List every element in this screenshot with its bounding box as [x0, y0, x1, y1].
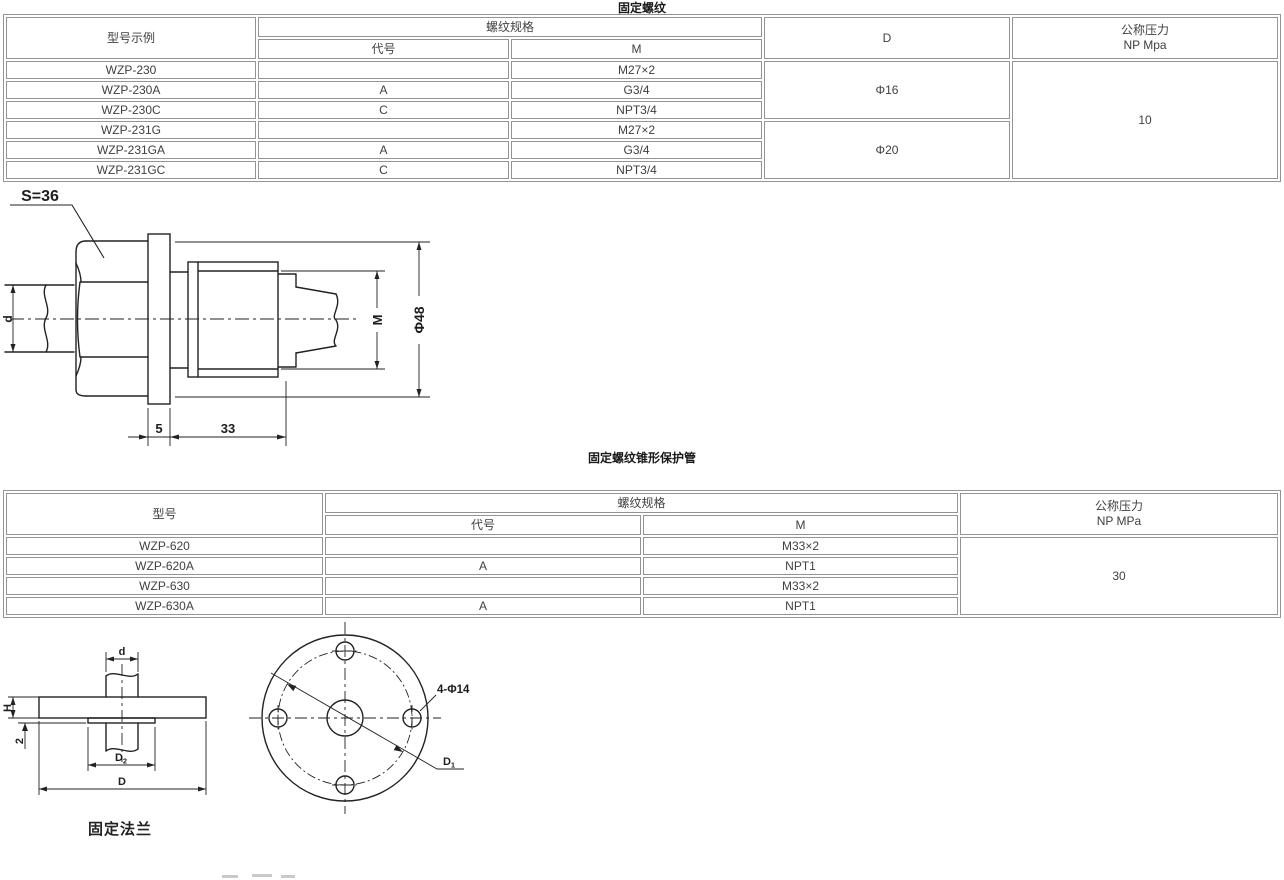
cell-model: WZP-230C	[6, 101, 256, 119]
d2-sub: 2	[123, 757, 127, 766]
fixed-thread-drawing: S=36	[0, 183, 460, 453]
cell-code: A	[258, 141, 509, 159]
pipe-break-line	[44, 285, 47, 352]
col-header-model: 型号示例	[6, 17, 256, 59]
cell-m: G3/4	[511, 81, 762, 99]
dim33-label: 33	[221, 421, 235, 436]
cell-m: M27×2	[511, 121, 762, 139]
s36-leader-line	[10, 205, 104, 258]
cell-m: NPT3/4	[511, 161, 762, 179]
cell-d-group1: Φ16	[764, 61, 1010, 119]
cell-code	[325, 537, 641, 555]
d1-main: D	[443, 756, 451, 768]
flange-side-view	[39, 674, 206, 752]
cell-code: C	[258, 101, 509, 119]
cell-m: M33×2	[643, 537, 958, 555]
d1-sub: 1	[451, 761, 455, 770]
cell-model: WZP-230	[6, 61, 256, 79]
cell-model: WZP-620	[6, 537, 323, 555]
cell-model: WZP-231GC	[6, 161, 256, 179]
top-view-centerlines	[249, 622, 441, 814]
threaded-section	[188, 262, 278, 377]
col-header-thread-spec: 螺纹规格	[258, 17, 762, 37]
s36-dimension-label: S=36	[21, 188, 59, 205]
cell-model: WZP-230A	[6, 81, 256, 99]
cell-m: M27×2	[511, 61, 762, 79]
tip-cone	[278, 274, 338, 367]
cell-pressure: 10	[1012, 61, 1278, 179]
cell-model: WZP-630	[6, 577, 323, 595]
side-dimension-arrows	[11, 657, 207, 792]
table-row: WZP-230 M27×2 Φ16 10	[6, 61, 1278, 79]
flange-D-label: D	[118, 776, 126, 788]
cutoff-content-fragment	[252, 874, 272, 877]
col-header-m: M	[643, 515, 958, 535]
cell-code	[258, 61, 509, 79]
tapered-tube-table: 型号 螺纹规格 公称压力 NP MPa 代号 M WZP-620 M33×2 3…	[3, 490, 1281, 618]
bolt-holes-label: 4-Φ14	[437, 684, 470, 696]
pressure-line2: NP Mpa	[1015, 38, 1275, 53]
cutoff-content-fragment	[222, 875, 238, 878]
cell-m: NPT1	[643, 557, 958, 575]
cell-code	[258, 121, 509, 139]
cell-code: C	[258, 161, 509, 179]
flange-d2-label: D2	[115, 752, 127, 766]
cell-m: NPT1	[643, 597, 958, 615]
pipe-outline	[5, 285, 74, 352]
flange-h-label: H	[2, 704, 14, 712]
cell-m: G3/4	[511, 141, 762, 159]
cell-d-group2: Φ20	[764, 121, 1010, 179]
dia48-dimension-label: Φ48	[411, 306, 427, 333]
cell-m: NPT3/4	[511, 101, 762, 119]
col-header-m: M	[511, 39, 762, 59]
cell-code	[325, 577, 641, 595]
flange-2-label: 2	[14, 738, 26, 744]
pressure-line1: 公称压力	[963, 499, 1275, 514]
cell-model: WZP-231G	[6, 121, 256, 139]
col-header-pressure: 公称压力 NP Mpa	[1012, 17, 1278, 59]
col-header-model: 型号	[6, 493, 323, 535]
cutoff-content-fragment	[281, 875, 295, 878]
cell-code: A	[258, 81, 509, 99]
d-dimension-label: d	[1, 315, 15, 322]
cell-pressure: 30	[960, 537, 1278, 615]
pressure-line2: NP MPa	[963, 514, 1275, 529]
table-header-row: 型号示例 螺纹规格 D 公称压力 NP Mpa	[6, 17, 1278, 37]
col-header-pressure: 公称压力 NP MPa	[960, 493, 1278, 535]
cell-m: M33×2	[643, 577, 958, 595]
cell-model: WZP-231GA	[6, 141, 256, 159]
flange-boss	[88, 718, 155, 723]
hex-nut	[76, 241, 148, 396]
col-header-code: 代号	[258, 39, 509, 59]
pressure-line1: 公称压力	[1015, 23, 1275, 38]
d1-label: D1	[443, 756, 455, 770]
flange-drawing: d H 2 D2 D 4-Φ14 D1	[0, 612, 500, 880]
table-header-row: 型号 螺纹规格 公称压力 NP MPa	[6, 493, 1278, 513]
d2-main: D	[115, 752, 123, 764]
col-header-d: D	[764, 17, 1010, 59]
section2-title: 固定螺纹锥形保护管	[0, 449, 1284, 466]
m-dimension-label: M	[370, 315, 385, 326]
flange-plate	[39, 697, 206, 718]
col-header-thread-spec: 螺纹规格	[325, 493, 958, 513]
cell-model: WZP-620A	[6, 557, 323, 575]
cell-code: A	[325, 557, 641, 575]
d1-dimension-line	[271, 673, 464, 769]
flange-d-label: d	[119, 646, 126, 658]
datasheet-page: { "section1": { "title": "固定螺纹", "table"…	[0, 0, 1284, 879]
neck	[170, 272, 188, 368]
flange-caption: 固定法兰	[88, 818, 152, 839]
table-row: WZP-620 M33×2 30	[6, 537, 1278, 555]
fixed-thread-table: 型号示例 螺纹规格 D 公称压力 NP Mpa 代号 M WZP-230 M27…	[3, 14, 1281, 182]
col-header-code: 代号	[325, 515, 641, 535]
dim5-label: 5	[155, 421, 162, 436]
